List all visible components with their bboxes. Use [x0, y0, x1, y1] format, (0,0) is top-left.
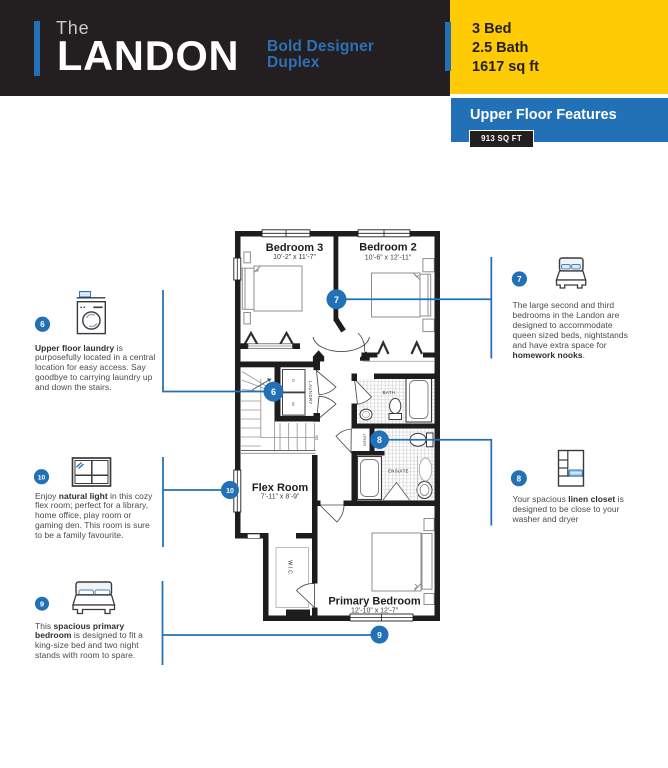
- svg-text:10’-2” x 11’-7”: 10’-2” x 11’-7”: [273, 254, 316, 261]
- svg-text:6: 6: [40, 320, 45, 329]
- svg-text:7: 7: [334, 295, 339, 305]
- svg-text:10: 10: [38, 474, 46, 481]
- svg-text:Bedroom 2: Bedroom 2: [359, 242, 416, 254]
- svg-text:ENSUITE: ENSUITE: [388, 469, 409, 474]
- svg-text:10: 10: [226, 488, 234, 495]
- svg-text:10’-6” x 12’-11”: 10’-6” x 12’-11”: [365, 255, 412, 262]
- svg-text:8: 8: [517, 474, 522, 483]
- svg-text:9: 9: [40, 600, 44, 609]
- svg-text:LAUNDRY: LAUNDRY: [308, 381, 313, 404]
- svg-text:Flex Room: Flex Room: [252, 482, 308, 494]
- svg-text:Bedroom 3: Bedroom 3: [266, 242, 323, 254]
- svg-text:D: D: [291, 379, 296, 382]
- svg-text:W.I.C.: W.I.C.: [287, 560, 293, 575]
- svg-text:DN: DN: [315, 434, 319, 440]
- svg-text:7: 7: [517, 275, 522, 284]
- svg-text:LINEN: LINEN: [363, 434, 367, 447]
- svg-text:7’-11” x 8’-9”: 7’-11” x 8’-9”: [261, 494, 300, 501]
- svg-text:12’-10” x 12’-7”: 12’-10” x 12’-7”: [351, 608, 399, 615]
- svg-text:9: 9: [377, 630, 382, 640]
- svg-text:W: W: [291, 402, 296, 406]
- svg-text:6: 6: [271, 387, 276, 397]
- svg-text:8: 8: [377, 435, 382, 445]
- svg-text:BATH: BATH: [383, 390, 396, 395]
- svg-text:Primary Bedroom: Primary Bedroom: [328, 596, 421, 608]
